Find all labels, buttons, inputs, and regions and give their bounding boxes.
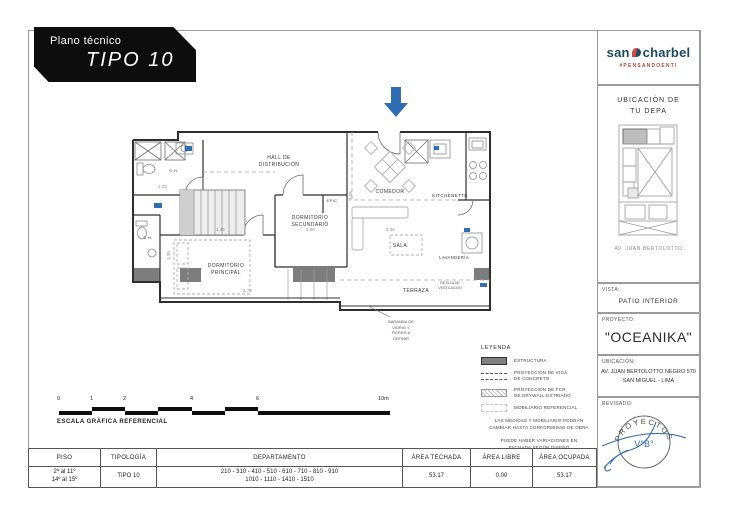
dining-table <box>365 142 416 193</box>
vent-grille-note: REJILLA DE VENTILACIÓN <box>428 281 472 291</box>
structure-walls <box>133 268 490 282</box>
logo-word-san: san <box>607 45 630 60</box>
highlighted-unit <box>623 129 647 144</box>
legend-item-estructura: ESTRUCTURA <box>481 357 597 365</box>
table-header-tipologia: TIPOLOGÍA <box>101 449 157 467</box>
stairs <box>180 190 245 235</box>
unit-location-title: UBICACIÓN DE TU DEPA <box>598 95 699 117</box>
entry-arrow-icon <box>384 87 408 117</box>
legend-note-1: LAS MEDIDAS Y MOBILIARIO PODRÁN CAMBIAR … <box>481 418 597 432</box>
scale-segment <box>225 407 258 411</box>
legend-title: LEYENDA <box>481 345 597 351</box>
room-label-comedor: COMEDOR <box>366 189 414 196</box>
revisado-label: REVISADO: <box>602 401 633 407</box>
terrace-railing <box>160 298 490 317</box>
direccion-label: UBICACIÓN: <box>602 359 635 365</box>
legend-swatch-dashed <box>481 373 507 380</box>
proyecto-box: PROYECTO: "OCEANIKA" <box>597 313 700 355</box>
scale-tick-1: 1 <box>90 396 93 402</box>
room-label-kitchenette: KITCHENETTE <box>424 193 476 199</box>
legend-label: ESTRUCTURA <box>514 358 547 364</box>
room-label-bano-1: S.H. <box>164 168 184 173</box>
direccion-value: AV. JUAN BERTOLOTTO NEGRO 570 SAN MIGUEL… <box>598 368 699 387</box>
dim-bano-top: 1.25 <box>158 184 167 189</box>
banner-subtitle: Plano técnico <box>50 35 121 47</box>
scale-segment <box>158 407 192 411</box>
dim-terraza-top: 1.08 <box>306 227 315 232</box>
dim-comedor-side: 3.05 <box>348 191 353 200</box>
room-label-sala: SALA <box>386 243 414 250</box>
room-label-bano-2: S.H. <box>138 235 158 240</box>
scale-tick-10m: 10m <box>378 396 389 402</box>
legend-item-fcr: PROYECCIÓN DE FCR DE DRYWALL ESTRIADO <box>481 387 597 399</box>
unit-location-box: UBICACIÓN DE TU DEPA <box>597 85 700 283</box>
scale-segment <box>125 411 158 415</box>
vista-value: PATIO INTERIOR <box>598 298 699 305</box>
plano-tecnico-sheet: Plano técnico TIPO 10 san charbel #PENSA… <box>0 0 730 515</box>
title-banner: Plano técnico TIPO 10 <box>34 27 196 82</box>
legend-label: MOBILIARIO REFERENCIAL <box>514 405 577 411</box>
proyecto-value: "OCEANIKA" <box>598 329 699 345</box>
approval-stamp-seal: PROYECTOS V°B° <box>598 402 688 482</box>
area-table: PISO TIPOLOGÍA DEPARTAMENTO ÁREA TECHADA… <box>28 448 597 488</box>
legend-label: PROYECCIÓN DE FCR DE DRYWALL ESTRIADO <box>514 387 571 399</box>
dim-dorm-ppal-left: 1.30 <box>166 251 171 260</box>
kitchen-fixtures <box>430 138 487 180</box>
legend-item-mobiliario: MOBILIARIO REFERENCIAL <box>481 404 597 412</box>
scale-tick-6: 6 <box>256 396 259 402</box>
scale-tick-4: 4 <box>190 396 193 402</box>
scale-segment <box>258 411 390 415</box>
table-header-area-techada: ÁREA TECHADA <box>403 449 471 467</box>
scale-segment <box>92 407 125 411</box>
room-label-hall: HALL DE DISTRIBUCIÓN <box>254 155 304 169</box>
sancharbel-logo: san charbel <box>598 45 699 60</box>
dim-dorm-ppal-bottom: 3.79 <box>243 288 252 293</box>
washing-machine <box>462 233 482 253</box>
table-header-area-ocupada: ÁREA OCUPADA <box>533 449 596 467</box>
logo-hashtag: #PENSANDOENTI <box>598 63 699 69</box>
table-cell-piso: 2º al 11º 14º al 15º <box>29 467 101 487</box>
proyecto-label: PROYECTO: <box>602 317 635 323</box>
logo-word-charbel: charbel <box>643 45 691 60</box>
table-cell-area-ocupada: 53.17 <box>533 467 596 487</box>
logo-box: san charbel #PENSANDOENTI <box>597 30 700 85</box>
site-street-caption: AV. JUAN BERTOLOTTO <box>598 246 699 252</box>
scale-segment <box>192 411 225 415</box>
legend: LEYENDA ESTRUCTURA PROYECCIÓN DE VIGA DE… <box>481 345 597 451</box>
legend-label: PROYECCIÓN DE VIGA DE CONCRETO <box>514 370 567 382</box>
site-plan-thumbnail <box>616 122 682 240</box>
legend-swatch-solid <box>481 357 507 365</box>
legend-swatch-hatch <box>481 389 507 397</box>
scale-tick-0: 0 <box>57 396 60 402</box>
table-header-departamento: DEPARTAMENTO <box>157 449 403 467</box>
table-cell-departamento: 210 - 310 - 410 - 510 - 610 - 710 - 810 … <box>157 467 403 487</box>
table-cell-tipologia: TIPO 10 <box>101 467 157 487</box>
dim-sala-top: 3.36 <box>386 227 395 232</box>
scale-segment <box>59 411 92 415</box>
table-cell-area-techada: 53.17 <box>403 467 471 487</box>
room-label-lavanderia: LAVANDERÍA <box>433 255 475 261</box>
vista-label: VISTA: <box>602 287 620 293</box>
vista-box: VISTA: PATIO INTERIOR <box>597 283 700 313</box>
scale-caption: ESCALA GRÁFICA REFERENCIAL <box>57 419 168 425</box>
sancharbel-logo-mark-icon <box>632 48 641 57</box>
scale-tick-2: 2 <box>123 396 126 402</box>
dim-dorm-ppal-top: 3.45 <box>216 227 225 232</box>
legend-swatch-dotted <box>481 404 507 412</box>
table-cell-area-libre: 0.00 <box>471 467 533 487</box>
legend-item-viga: PROYECCIÓN DE VIGA DE CONCRETO <box>481 370 597 382</box>
table-header-piso: PISO <box>29 449 101 467</box>
floor-plan: HALL DE DISTRIBUCIÓN EPIC COMEDOR KITCHE… <box>128 85 538 350</box>
direccion-box: UBICACIÓN: AV. JUAN BERTOLOTTO NEGRO 570… <box>597 355 700 397</box>
table-header-area-libre: ÁREA LIBRE <box>471 449 533 467</box>
room-label-closet: EPIC <box>320 198 344 203</box>
banner-title: TIPO 10 <box>86 49 174 72</box>
railing-note: BARANDA DE VIDRIO Y FIERRO A DEFINIR <box>378 319 424 341</box>
room-label-dormitorio-principal: DORMITORIO PRINCIPAL <box>198 263 254 277</box>
revisado-box: REVISADO: PROYECTOS V°B° <box>597 397 700 487</box>
